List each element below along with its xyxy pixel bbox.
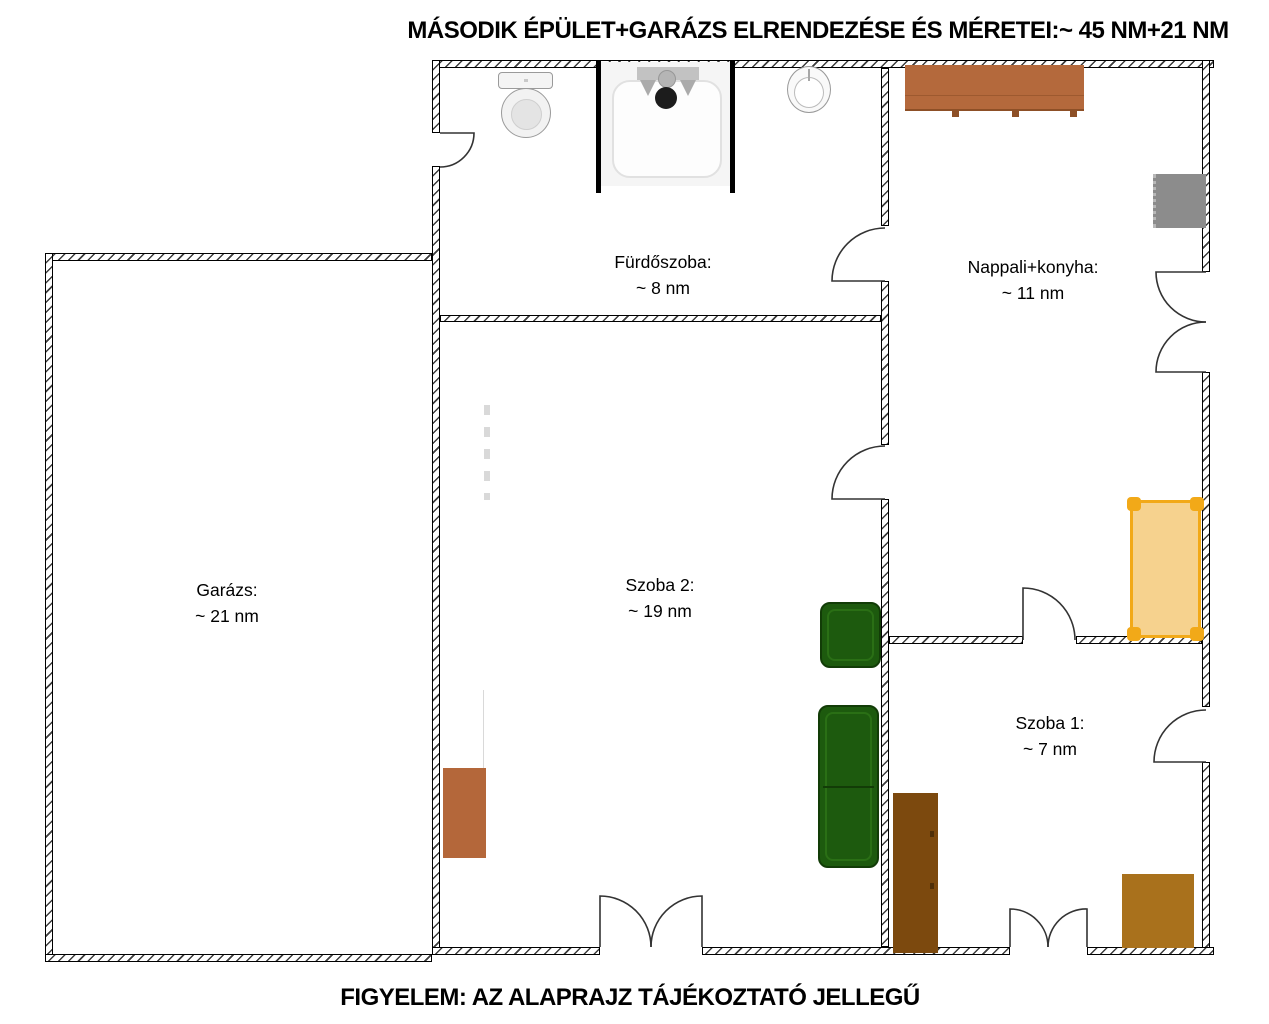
counter-foot: [952, 111, 959, 117]
wall-exterior-left-upper: [432, 60, 440, 133]
wall-center-vertical-middle: [881, 281, 889, 445]
shower-drain: [655, 87, 677, 109]
plan-disclaimer: FIGYELEM: AZ ALAPRAJZ TÁJÉKOZTATÓ JELLEG…: [340, 984, 920, 1012]
bed: [1130, 500, 1201, 638]
door-szoba1-french-right: [1048, 909, 1087, 947]
wall-szoba1-top-left: [889, 636, 1023, 644]
counter-foot: [1070, 111, 1077, 117]
cabinet: [443, 768, 486, 858]
plan-title: MÁSODIK ÉPÜLET+GARÁZS ELRENDEZÉSE ÉS MÉR…: [407, 17, 1228, 45]
door-bathroom-left: [440, 133, 474, 167]
counter-foot: [1012, 111, 1019, 117]
sink-basin: [794, 77, 824, 108]
room-name: Garázs:: [195, 577, 259, 603]
wall-center-vertical-upper: [881, 68, 889, 226]
sofa-cushion-divider: [823, 786, 874, 788]
room-area: ~ 21 nm: [195, 603, 259, 629]
room-area: ~ 19 nm: [625, 598, 694, 624]
door-szoba2: [832, 446, 885, 499]
bed-post: [1127, 497, 1141, 511]
door-szoba1-right: [1154, 710, 1206, 762]
wall-exterior-bottom-right: [1087, 947, 1214, 955]
room-label-nappali-konyha: Nappali+konyha: ~ 11 nm: [968, 254, 1099, 306]
faint-line: [483, 690, 484, 768]
room-area: ~ 7 nm: [1015, 736, 1084, 762]
shower-handle-left-icon: [640, 80, 656, 96]
door-nappali-szoba1: [1023, 588, 1075, 640]
door-nappali-french-top: [1156, 272, 1206, 322]
bed-post: [1190, 497, 1204, 511]
wall-exterior-right-middle: [1202, 372, 1210, 707]
shower-wall-right: [730, 60, 735, 193]
wardrobe: [893, 793, 938, 953]
wall-exterior-bottom-middle: [702, 947, 1010, 955]
wall-bathroom-szoba2: [440, 315, 881, 322]
door-szoba2-french-right: [651, 896, 702, 947]
wall-exterior-right-upper: [1202, 60, 1210, 272]
room-label-furdoszoba: Fürdőszoba: ~ 8 nm: [614, 249, 711, 301]
room-name: Szoba 2:: [625, 572, 694, 598]
room-area: ~ 8 nm: [614, 275, 711, 301]
desk: [1122, 874, 1194, 948]
wall-exterior-left-lower: [432, 166, 440, 955]
armchair-cushion: [827, 609, 874, 661]
shower-handle-right-icon: [680, 80, 696, 96]
toilet-tank: [498, 72, 553, 89]
room-label-szoba2: Szoba 2: ~ 19 nm: [625, 572, 694, 624]
room-label-szoba1: Szoba 1: ~ 7 nm: [1015, 710, 1084, 762]
wardrobe-handle: [930, 883, 934, 889]
sink-tap-icon: [808, 69, 810, 81]
floor-plan: MÁSODIK ÉPÜLET+GARÁZS ELRENDEZÉSE ÉS MÉR…: [0, 0, 1269, 1024]
room-name: Szoba 1:: [1015, 710, 1084, 736]
wall-exterior-right-lower: [1202, 762, 1210, 955]
room-area: ~ 11 nm: [968, 280, 1099, 306]
bed-post: [1190, 627, 1204, 641]
wall-center-vertical-lower: [881, 499, 889, 947]
door-nappali-french-bottom: [1156, 322, 1206, 372]
wall-garage-bottom: [45, 954, 432, 962]
sofa: [818, 705, 879, 868]
wall-garage-top: [45, 253, 432, 261]
armchair: [820, 602, 881, 668]
wall-exterior-bottom-left: [432, 947, 600, 955]
door-szoba1-french-left: [1010, 909, 1048, 947]
shower-knob: [658, 70, 676, 88]
room-name: Fürdőszoba:: [614, 249, 711, 275]
bed-post: [1127, 627, 1141, 641]
kitchen-counter: [905, 65, 1084, 111]
radiator-mark: [484, 405, 490, 500]
room-label-garazs: Garázs: ~ 21 nm: [195, 577, 259, 629]
wardrobe-handle: [930, 831, 934, 837]
stove-appliance: [1153, 174, 1206, 228]
room-name: Nappali+konyha:: [968, 254, 1099, 280]
wall-garage-left: [45, 253, 53, 962]
toilet-bowl-inner: [511, 99, 542, 130]
door-szoba2-french-left: [600, 896, 651, 947]
wall-exterior-top: [432, 60, 1214, 68]
door-bathroom: [832, 228, 885, 281]
